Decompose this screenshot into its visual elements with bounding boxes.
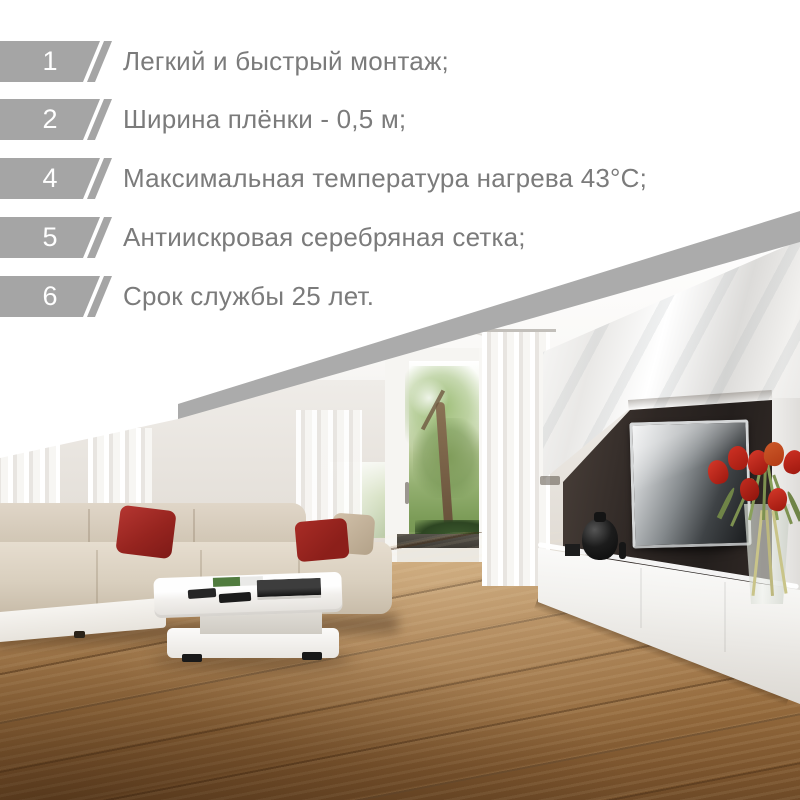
feature-text: Ширина плёнки - 0,5 м; — [123, 104, 406, 135]
number-badge: 1 — [0, 41, 112, 82]
number-badge: 5 — [0, 217, 112, 258]
promo-card: 1 Легкий и быстрый монтаж; 2 Ширина плён… — [0, 0, 800, 800]
feature-text: Максимальная температура нагрева 43°C; — [123, 163, 647, 194]
badge-number: 2 — [14, 99, 86, 140]
feature-row-5: 6 Срок службы 25 лет. — [0, 276, 374, 317]
feature-text: Легкий и быстрый монтаж; — [123, 46, 449, 77]
number-badge: 4 — [0, 158, 112, 199]
number-badge: 2 — [0, 99, 112, 140]
badge-number: 4 — [14, 158, 86, 199]
feature-list: 1 Легкий и быстрый монтаж; 2 Ширина плён… — [0, 0, 800, 340]
badge-number: 5 — [14, 217, 86, 258]
number-badge: 6 — [0, 276, 112, 317]
badge-number: 1 — [14, 41, 86, 82]
feature-row-4: 5 Антиискровая серебряная сетка; — [0, 217, 526, 258]
feature-row-2: 2 Ширина плёнки - 0,5 м; — [0, 99, 406, 140]
feature-text: Срок службы 25 лет. — [123, 281, 374, 312]
feature-row-3: 4 Максимальная температура нагрева 43°C; — [0, 158, 647, 199]
badge-number: 6 — [14, 276, 86, 317]
feature-text: Антиискровая серебряная сетка; — [123, 222, 526, 253]
feature-row-1: 1 Легкий и быстрый монтаж; — [0, 41, 449, 82]
